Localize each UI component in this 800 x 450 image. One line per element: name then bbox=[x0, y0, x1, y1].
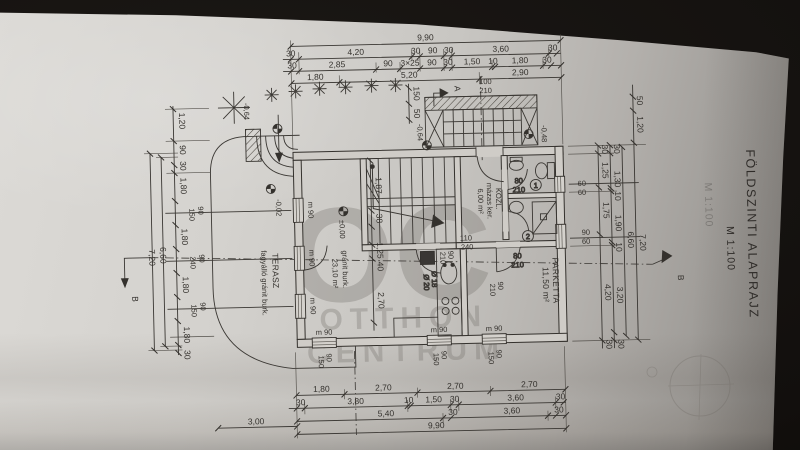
door-number-2: 2 bbox=[526, 232, 530, 241]
dim: 5,20 bbox=[401, 70, 418, 80]
dim: 7,20 bbox=[638, 234, 648, 251]
dim: 30 bbox=[542, 55, 552, 65]
window bbox=[293, 198, 304, 222]
terrace-pier bbox=[245, 129, 261, 161]
toilet bbox=[535, 163, 547, 179]
dim: 4,20 bbox=[347, 47, 364, 57]
room-kozl-area: 6,00 m² bbox=[476, 188, 486, 214]
parketta-door-h: 210 bbox=[488, 284, 497, 297]
window-label: m 90 bbox=[486, 324, 503, 333]
window-sill: 240 bbox=[188, 256, 197, 269]
dim: 9,90 bbox=[417, 32, 434, 42]
svg-text:-0,02: -0,02 bbox=[274, 199, 283, 216]
title-block: M 1:100 FÖLDSZINTI ALAPRAJZ M 1:100 bbox=[701, 149, 761, 320]
dim: 30 bbox=[444, 45, 454, 55]
window-label: m 90 bbox=[308, 298, 317, 315]
dim: 90 bbox=[427, 57, 437, 67]
dim: 1,25 bbox=[600, 162, 610, 179]
dim: 6,60 bbox=[158, 247, 168, 264]
window-sill: 150 bbox=[317, 355, 326, 368]
dim: 3,20 bbox=[615, 287, 625, 304]
bath1-door-size-h: 210 bbox=[513, 185, 526, 194]
dim: 30 bbox=[450, 394, 460, 404]
room-kozl: KÖZL. bbox=[494, 188, 503, 210]
dim: 3,80 bbox=[347, 396, 364, 406]
window-size: 90 bbox=[582, 228, 591, 237]
svg-text:-0,48: -0,48 bbox=[539, 125, 548, 142]
dim: 1,20 bbox=[177, 113, 187, 130]
window bbox=[555, 176, 565, 192]
dim: 50 bbox=[635, 96, 645, 106]
dim: 10 bbox=[488, 56, 498, 66]
window-sill: 150 bbox=[189, 304, 198, 317]
dim: 30 bbox=[554, 404, 564, 414]
door-number-1: 1 bbox=[534, 181, 538, 190]
dim: 2,70 bbox=[447, 381, 464, 391]
dim: 2,70 bbox=[376, 292, 386, 309]
dim: 10 bbox=[614, 242, 624, 252]
level-entry-left: -0,64 bbox=[415, 124, 431, 150]
dim: 1,20 bbox=[635, 116, 645, 133]
dim: 9,90 bbox=[428, 420, 445, 430]
dim: 30 bbox=[556, 391, 566, 401]
door-arc bbox=[508, 211, 528, 231]
dim: 5,40 bbox=[378, 408, 395, 418]
bath2-door-size-w: 80 bbox=[513, 251, 522, 260]
dim: 1,80 bbox=[307, 72, 324, 82]
dim: 1,75 bbox=[601, 202, 611, 219]
drawing-title: FÖLDSZINTI ALAPRAJZ bbox=[743, 149, 761, 319]
dim: 4,20 bbox=[603, 284, 613, 301]
entrance-size-w: 100 bbox=[479, 77, 492, 86]
photo-of-floor-plan: OC OTTHON CENTRUM M 1:100 FÖLDSZINTI ALA… bbox=[0, 0, 800, 450]
dim: 6,60 bbox=[626, 231, 636, 248]
title-ghost: M 1:100 bbox=[702, 182, 715, 227]
window-sill: 60 bbox=[578, 188, 587, 197]
window bbox=[482, 334, 506, 345]
dim: 38 bbox=[374, 214, 384, 224]
dim: 90 bbox=[383, 58, 393, 68]
dim: 10 bbox=[404, 395, 414, 405]
window-sill: 150 bbox=[432, 353, 441, 366]
dim: 30 bbox=[296, 397, 306, 407]
window bbox=[295, 294, 306, 318]
dim: 30 bbox=[548, 42, 558, 52]
dim: 1,50 bbox=[464, 56, 481, 66]
svg-text:-0,64: -0,64 bbox=[415, 124, 424, 141]
dim: 3,60 bbox=[492, 43, 509, 53]
dim: 1,80 bbox=[179, 178, 189, 195]
room-living-area: 23,10 m² bbox=[330, 259, 340, 289]
svg-text:±0,00: ±0,00 bbox=[338, 220, 347, 239]
dim: 30 bbox=[182, 350, 192, 360]
dim: 2,85 bbox=[329, 59, 346, 69]
window-label: m 90 bbox=[431, 325, 448, 334]
level-terrace: -0,02 bbox=[266, 184, 283, 216]
window-sill: 150 bbox=[487, 352, 496, 365]
window-size: 90 bbox=[197, 254, 206, 263]
entrance-size-h: 210 bbox=[479, 86, 492, 95]
dim: 30 bbox=[448, 407, 458, 417]
window bbox=[294, 246, 305, 270]
room-terasz-finish: fagyálló gránit burk. bbox=[259, 250, 269, 316]
level-entry-right: -0,48 bbox=[524, 125, 549, 143]
dim: 30 bbox=[178, 161, 188, 171]
dim: 30 bbox=[287, 60, 297, 70]
dim: 1,80 bbox=[180, 228, 190, 245]
section-b-right-arrow bbox=[661, 250, 672, 263]
window-size: 90 bbox=[198, 302, 207, 311]
section-b-left-arrow bbox=[121, 278, 129, 288]
dim: 90 bbox=[178, 145, 188, 155]
svg-text:-0,64: -0,64 bbox=[242, 103, 251, 120]
dim: 1,50 bbox=[425, 394, 442, 404]
window-label: m 90 bbox=[306, 202, 315, 219]
dim: 50 bbox=[412, 109, 422, 119]
dim: 30 bbox=[411, 45, 421, 55]
section-a-label: A bbox=[453, 86, 463, 92]
room-living-finish: gránit burk. bbox=[340, 250, 350, 288]
bathroom-2: 2 80 210 bbox=[508, 200, 558, 269]
dim: 1,80 bbox=[313, 384, 330, 394]
dim: 2,90 bbox=[512, 67, 529, 77]
window-label: m 90 bbox=[316, 328, 333, 337]
dim: 2,70 bbox=[521, 379, 538, 389]
dim: 3,00 bbox=[248, 416, 265, 426]
dim: 1,80 bbox=[182, 326, 192, 343]
dim: 150 bbox=[412, 86, 422, 101]
dimension-text-top: 9,90 30 4,20 30 90 30 3,60 30 30 2,85 90… bbox=[286, 29, 559, 82]
chimney-d2: Ø 20 bbox=[422, 274, 431, 290]
dim: 3,60 bbox=[507, 392, 524, 402]
dimension-text-left: 1,20 90 30 1,80 1,80 1,80 1,80 30 6,60 7… bbox=[144, 113, 193, 361]
dim: 2,70 bbox=[375, 382, 392, 392]
dim: 30 bbox=[604, 339, 614, 349]
entrance-opening bbox=[476, 147, 503, 158]
dim: 30 bbox=[616, 339, 626, 349]
window bbox=[556, 224, 567, 248]
dim: 30 bbox=[612, 144, 622, 154]
room-parketta-area: 11,50 m² bbox=[541, 267, 552, 303]
floor-plan-drawing: OC OTTHON CENTRUM M 1:100 FÖLDSZINTI ALA… bbox=[0, 0, 800, 450]
window-size: 90 bbox=[196, 206, 205, 215]
dim: 3×25 bbox=[400, 58, 420, 68]
chimney bbox=[420, 251, 434, 264]
dim: 30 bbox=[286, 48, 296, 58]
dim: 1,80 bbox=[512, 55, 529, 65]
window bbox=[312, 337, 336, 348]
opening-size-h: 240 bbox=[461, 242, 474, 251]
entrance-steps bbox=[425, 95, 538, 148]
dim: 1,25 bbox=[375, 242, 385, 259]
dim: 1,30 bbox=[612, 171, 622, 188]
bath2-door-size-h: 210 bbox=[511, 260, 524, 269]
dim: 90 bbox=[428, 45, 438, 55]
dim: 1,87 bbox=[374, 177, 384, 194]
window-sill: 150 bbox=[187, 208, 196, 221]
bath1-door-size-w: 80 bbox=[514, 176, 523, 185]
dim: 1,90 bbox=[613, 215, 623, 232]
dim: 40 bbox=[375, 262, 385, 272]
drawing-scale: M 1:100 bbox=[724, 226, 737, 271]
dim: 30 bbox=[600, 144, 610, 154]
dimension-text-right: 30 1,25 1,75 4,20 30 30 1,30 10 1,90 10 … bbox=[599, 96, 651, 350]
section-b-left-label: B bbox=[130, 296, 140, 302]
dim: 30 bbox=[443, 57, 453, 67]
bathroom-1: 1 80 210 bbox=[507, 156, 555, 194]
bleed-through-stamp bbox=[647, 354, 734, 420]
dim: 7,20 bbox=[147, 249, 157, 266]
dim: 1,80 bbox=[181, 276, 191, 293]
section-b-right-label: B bbox=[676, 275, 686, 281]
dim: 10 bbox=[613, 191, 623, 201]
dim: 3,60 bbox=[504, 405, 521, 415]
kitchen-door-h: 210 bbox=[438, 252, 447, 265]
window-label: m 90 bbox=[307, 250, 316, 267]
opening-size-w: 110 bbox=[460, 233, 472, 242]
